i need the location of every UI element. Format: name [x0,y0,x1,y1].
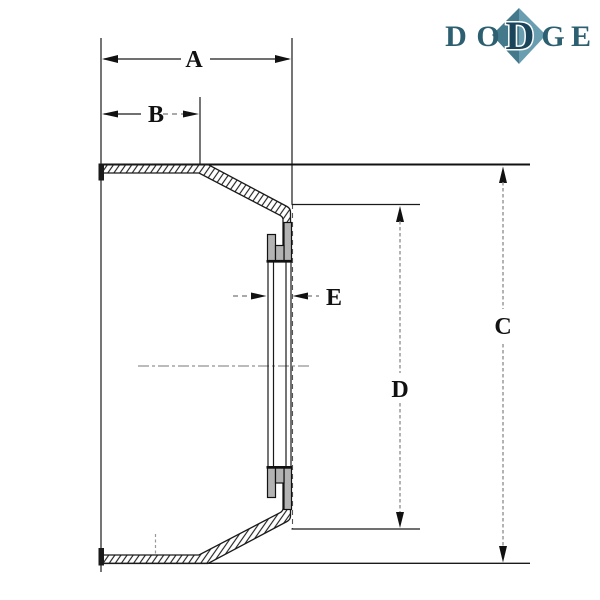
dim-d: D [391,206,408,528]
dim-a: A [102,47,291,73]
arrowhead-left-pointing [293,293,309,300]
dim-c: C [494,167,511,563]
logo-letter-d1: D [445,20,467,53]
logo-letter-d2: D [506,13,535,58]
arrowhead-right [275,55,291,63]
arrowhead-up [396,206,404,222]
bushing-body [268,468,276,498]
screenshot-root: D O D G E [0,0,600,600]
hub-barrel [268,262,291,466]
dim-label-e: E [326,285,342,311]
dodge-logo: D O D G E [445,8,591,64]
arrowhead-down [396,512,404,528]
bottom-wall-section [100,482,291,564]
bushing-bottom [267,467,293,509]
bushing-top [267,223,293,262]
logo-letter-e: E [571,20,591,53]
shell-end-top [99,164,105,181]
arrowhead-down [499,546,507,563]
bushing-flange [284,223,292,261]
shell-end-bottom [99,548,105,566]
bushing-body [268,235,276,261]
dim-label-d: D [391,377,408,403]
dim-e: E [233,285,342,311]
arrowhead-left [102,111,118,118]
dim-label-c: C [494,314,511,340]
bushing-flange [284,468,292,510]
logo-letter-o: O [476,20,499,53]
technical-drawing: D O D G E [0,0,600,600]
arrowhead-left [102,55,118,63]
dim-b: B [102,102,199,128]
top-wall-section [100,165,291,247]
bushing-key [276,246,285,261]
arrowhead-right [183,111,199,118]
dim-label-b: B [148,102,164,128]
logo-letter-g: G [541,20,564,53]
arrowhead-up [499,167,507,184]
bushing-key [276,468,285,483]
extension-lines [100,38,530,572]
dim-label-a: A [185,47,203,73]
part-cross-section [99,164,293,566]
arrowhead-right-pointing [251,293,267,300]
